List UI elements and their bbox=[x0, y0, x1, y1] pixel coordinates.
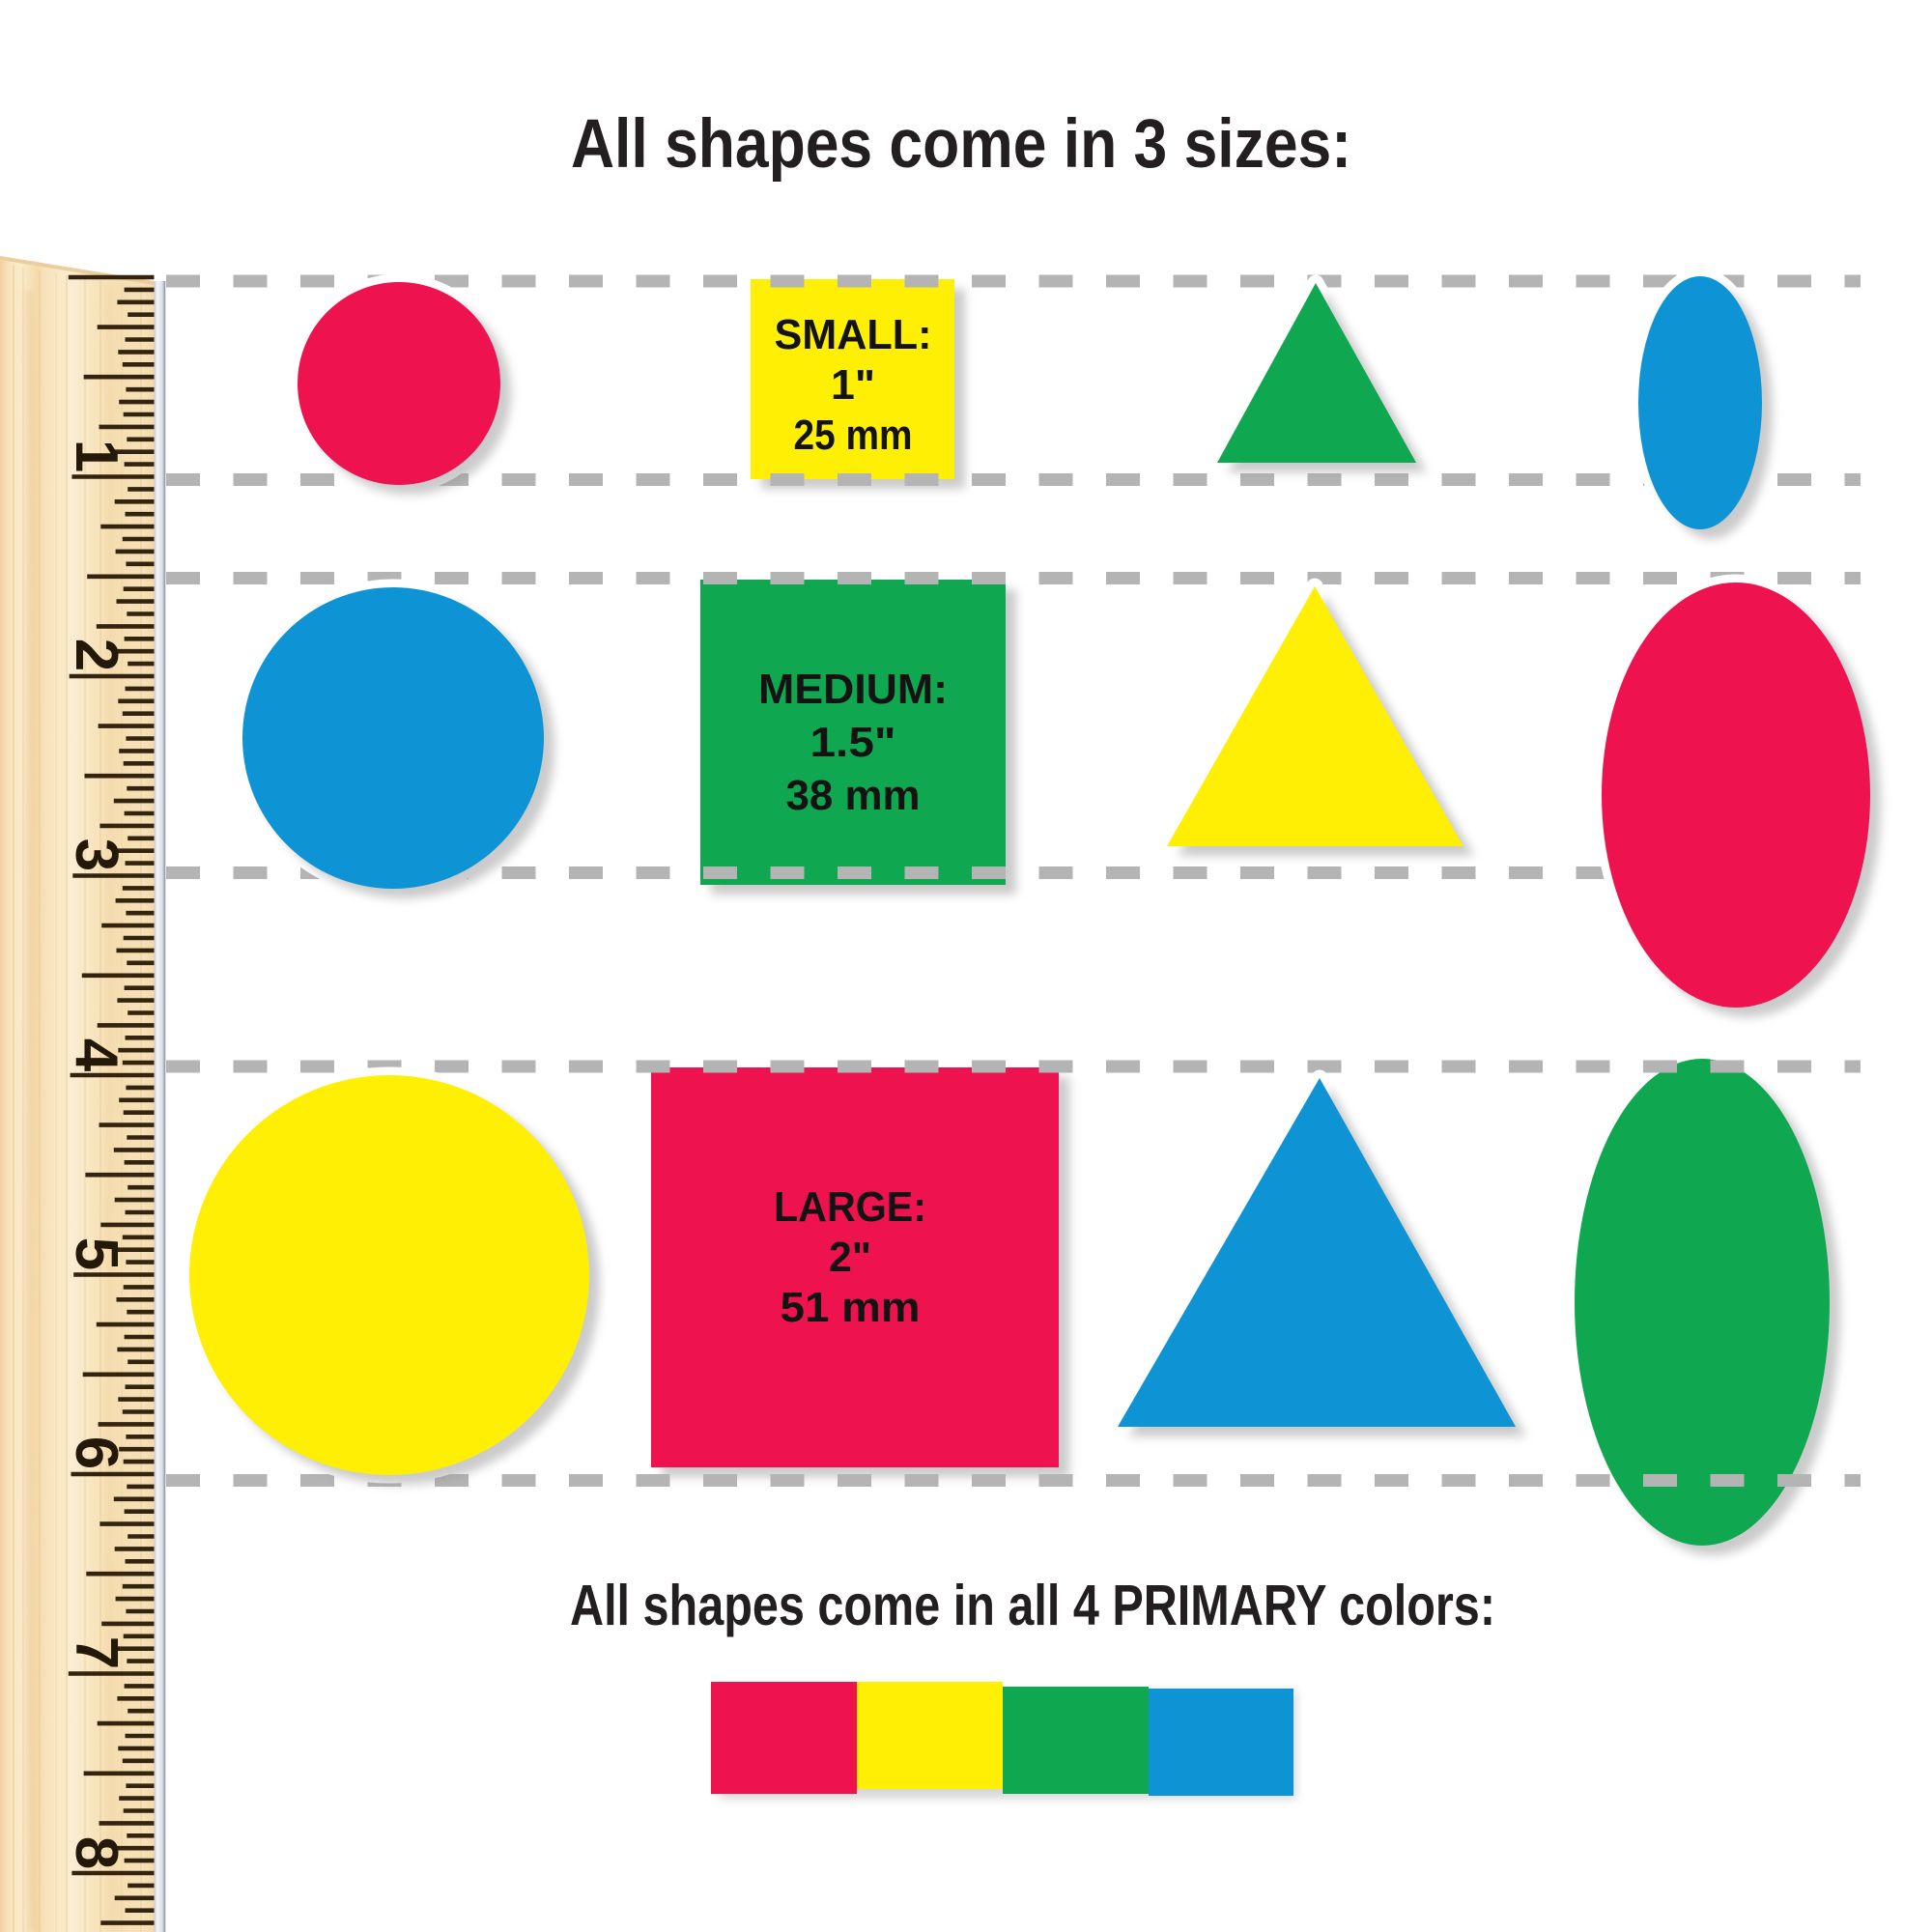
svg-text:3: 3 bbox=[63, 838, 129, 871]
svg-text:1": 1" bbox=[831, 361, 875, 409]
svg-text:LARGE:: LARGE: bbox=[774, 1183, 926, 1231]
svg-text:51 mm: 51 mm bbox=[781, 1284, 921, 1331]
svg-text:SMALL:: SMALL: bbox=[775, 311, 932, 358]
svg-text:2: 2 bbox=[63, 639, 129, 671]
svg-text:2": 2" bbox=[829, 1234, 871, 1281]
svg-text:4: 4 bbox=[63, 1038, 129, 1072]
svg-text:6: 6 bbox=[63, 1436, 129, 1469]
svg-text:All shapes come in all 4 PRIMA: All shapes come in all 4 PRIMARY colors: bbox=[570, 1574, 1495, 1637]
svg-text:38 mm: 38 mm bbox=[786, 772, 921, 819]
svg-text:MEDIUM:: MEDIUM: bbox=[758, 666, 948, 713]
svg-text:1.5": 1.5" bbox=[810, 719, 896, 766]
svg-text:7: 7 bbox=[63, 1636, 129, 1669]
svg-text:5: 5 bbox=[63, 1237, 129, 1270]
svg-text:25 mm: 25 mm bbox=[794, 412, 913, 459]
svg-text:8: 8 bbox=[63, 1836, 129, 1869]
svg-text:All shapes come in 3 sizes:: All shapes come in 3 sizes: bbox=[571, 106, 1351, 183]
svg-text:1: 1 bbox=[63, 440, 129, 472]
